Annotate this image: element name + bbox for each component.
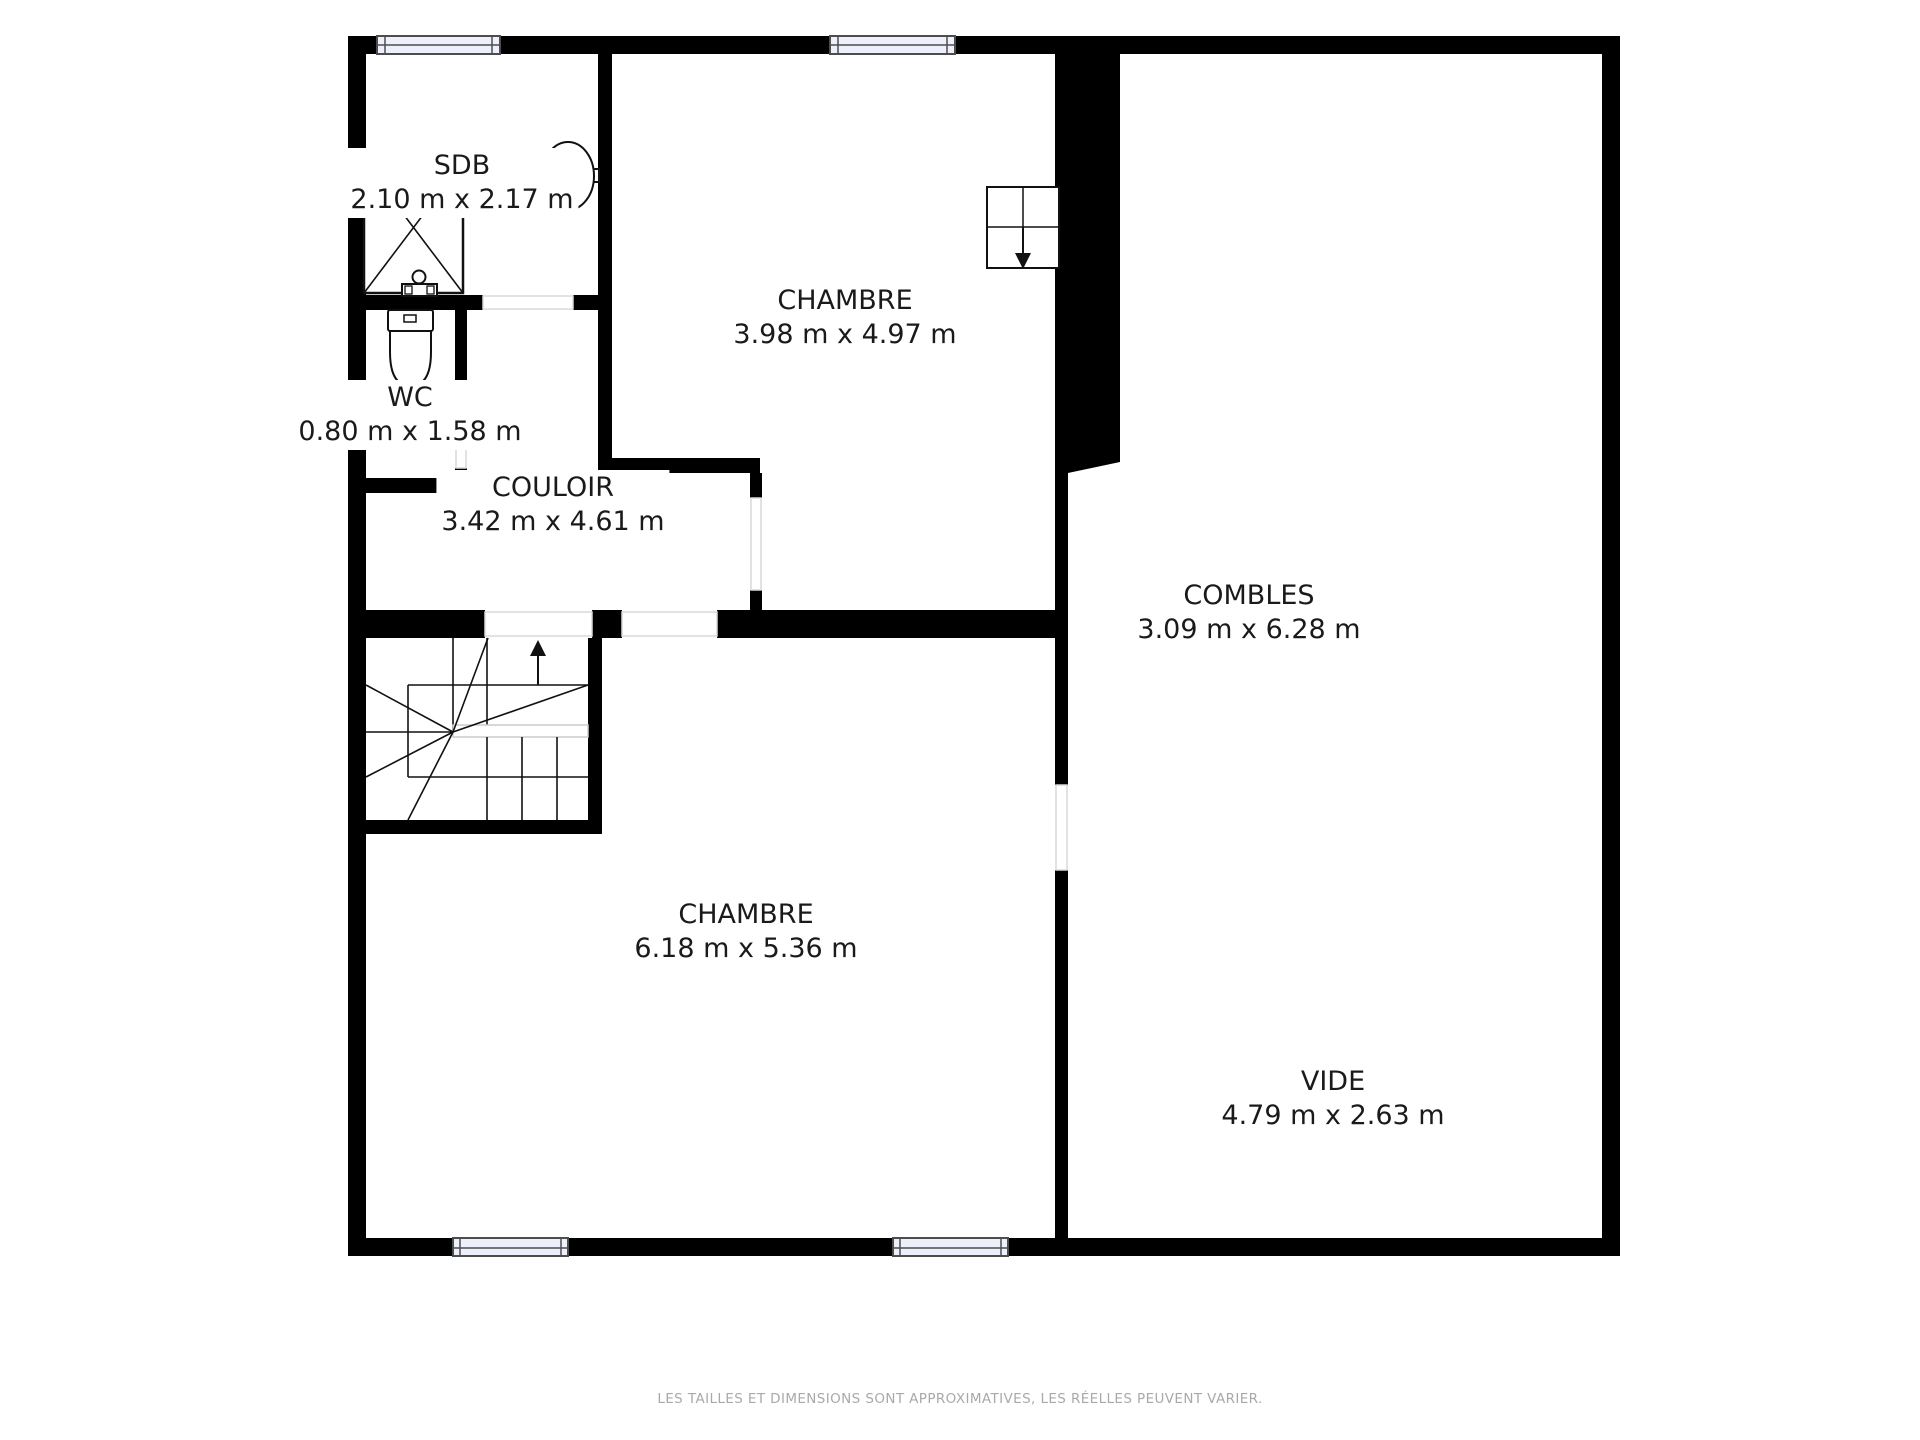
wall-stairwell-right	[588, 638, 602, 834]
floorplan-canvas	[0, 0, 1920, 1440]
room-label-chambre-haut: CHAMBRE 3.98 m x 4.97 m	[728, 283, 961, 353]
window-top-left-icon	[377, 36, 500, 54]
door-combles	[1056, 785, 1067, 870]
wall-sdb-bottom	[366, 295, 483, 310]
room-name-chambre-bas: CHAMBRE	[634, 898, 857, 932]
room-name-chambre-haut: CHAMBRE	[733, 284, 956, 318]
room-dims-wc: 0.80 m x 1.58 m	[298, 415, 521, 449]
room-name-combles: COMBLES	[1137, 579, 1360, 613]
wall-couloir-chambre-upper	[750, 473, 762, 498]
door-chambre-bas	[622, 612, 717, 636]
room-dims-vide: 4.79 m x 2.63 m	[1221, 1099, 1444, 1133]
window-top-middle-icon	[830, 36, 955, 54]
exterior-wall-right	[1602, 36, 1620, 1256]
room-dims-couloir: 3.42 m x 4.61 m	[441, 505, 664, 539]
wall-vide-lower	[1055, 870, 1068, 1238]
room-dims-combles: 3.09 m x 6.28 m	[1137, 613, 1360, 647]
room-dims-sdb: 2.10 m x 2.17 m	[350, 183, 573, 217]
footer-disclaimer: LES TAILLES ET DIMENSIONS SONT APPROXIMA…	[657, 1391, 1262, 1407]
room-label-combles: COMBLES 3.09 m x 6.28 m	[1132, 578, 1365, 648]
floorplan-page: SDB 2.10 m x 2.17 m WC 0.80 m x 1.58 m C…	[0, 0, 1920, 1440]
stairs-icon	[366, 638, 588, 820]
wall-sdb-chambre	[598, 54, 612, 460]
wall-couloir-bas-2	[592, 610, 622, 638]
room-name-couloir: COULOIR	[441, 471, 664, 505]
room-label-wc: WC 0.80 m x 1.58 m	[293, 380, 526, 450]
wall-combles-upper	[1055, 470, 1068, 785]
attic-hatch-icon	[987, 187, 1059, 269]
room-label-couloir: COULOIR 3.42 m x 4.61 m	[436, 470, 669, 540]
door-thresholds	[456, 296, 1067, 870]
room-name-wc: WC	[298, 381, 521, 415]
windows	[377, 36, 1008, 1256]
window-bottom-middle-icon	[893, 1238, 1008, 1256]
room-label-sdb: SDB 2.10 m x 2.17 m	[345, 148, 578, 218]
window-bottom-left-icon	[453, 1238, 568, 1256]
stairs-up-arrow-icon	[530, 640, 546, 685]
room-label-vide: VIDE 4.79 m x 2.63 m	[1216, 1064, 1449, 1134]
wall-wc-right-upper	[455, 308, 467, 383]
room-label-chambre-bas: CHAMBRE 6.18 m x 5.36 m	[629, 897, 862, 967]
room-name-sdb: SDB	[350, 149, 573, 183]
exterior-wall-top	[348, 36, 1620, 54]
wall-stairwell-bottom	[366, 820, 602, 834]
door-stairs	[485, 612, 592, 636]
wall-chambre-combles-thick	[1055, 36, 1120, 473]
door-sdb	[483, 296, 573, 309]
wall-couloir-bas-1	[366, 610, 485, 638]
room-dims-chambre-haut: 3.98 m x 4.97 m	[733, 318, 956, 352]
wall-sdb-bottom-stub	[573, 295, 598, 310]
toilet-icon	[388, 310, 433, 386]
wall-couloir-bas-3	[717, 610, 1068, 638]
room-dims-chambre-bas: 6.18 m x 5.36 m	[634, 932, 857, 966]
room-name-vide: VIDE	[1221, 1065, 1444, 1099]
door-chambre-haut	[751, 498, 761, 590]
